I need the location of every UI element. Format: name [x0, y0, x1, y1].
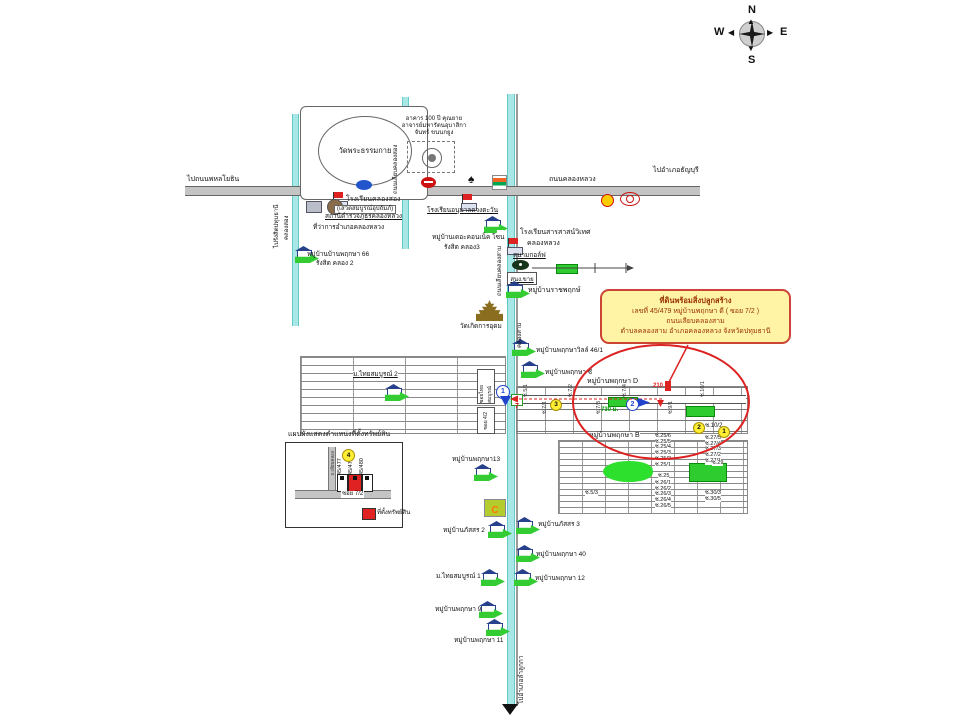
connect-label-1: หมู่บ้านเดอะคอนเน็ค โซน — [432, 234, 505, 241]
thai-somboon-label: ม.ไทยสมบูรณ์ 2 — [353, 371, 398, 378]
soi-5-3-label: ซ.5/3 — [585, 490, 598, 496]
soi-26-stack: ซ.26/1ซ.26/2ซ.26/3ซ.26/4ซ.26/5 — [655, 481, 671, 510]
property-callout: ที่ดินพร้อมสิ่งปลูกสร้าง เลขที่ 45/479 ห… — [600, 289, 791, 344]
soi-thai-somboon-box: ซอยไทยสมบูรณ์ — [477, 369, 495, 404]
kindergarten-label: โรงเรียนอนุบาลดวงตะวัน — [427, 207, 498, 214]
plot-house-subject — [348, 474, 362, 492]
plot-house-left — [337, 474, 348, 492]
connect-house-icon — [482, 216, 508, 233]
compass-arrow-left-icon: ◀ — [728, 28, 734, 37]
golf-ball — [519, 263, 522, 266]
district-office-label: ที่ว่าการอำเภอคลองหลวง — [313, 224, 384, 231]
route-point-7: 7 — [515, 403, 519, 410]
legend-vroad: ถ.เลียบคลอง — [328, 447, 336, 494]
callout-line-1: ที่ดินพร้อมสิ่งปลูกสร้าง — [608, 296, 783, 307]
compass-arrow-down-icon: ▼ — [747, 44, 755, 53]
legend-key-swatch — [362, 508, 376, 520]
flag-red — [334, 192, 343, 198]
pruksa13-label: หมู่บ้านพฤกษา13 — [452, 456, 500, 463]
wat-dhammakaya-label: วัดพระธรรมกาย — [339, 147, 392, 156]
spade-landmark-icon: ♠ — [468, 173, 474, 187]
toyota-inner — [626, 195, 634, 203]
soi-tick: ซ.5/1 — [522, 387, 530, 397]
shell-icon — [601, 194, 614, 207]
canal2-road-label: ถนนเลียบคลองสอง — [393, 136, 400, 194]
pruksa40-label: หมู่บ้านพฤกษา 40 — [536, 551, 586, 558]
lotus-icon — [356, 180, 372, 190]
soi-thai-somboon-label: ซอยไทยสมบูรณ์ — [478, 370, 494, 403]
pruksa12-label: หมู่บ้านพฤกษา 12 — [535, 575, 585, 582]
flag-red — [463, 194, 472, 200]
compass-e: E — [780, 26, 787, 39]
pruksa9-label: หมู่บ้านพฤกษา 9 — [435, 606, 481, 613]
sarasas-label-1: โรงเรียนสารสาสน์วิเทศ — [520, 229, 591, 237]
thai-somboon-house-icon — [383, 384, 409, 401]
wat-koed-temple-icon — [476, 300, 503, 321]
road-name-label: ถนนคลองหลวง — [549, 176, 596, 184]
soi-4-2-box: ซอย 4/2 — [477, 407, 495, 434]
thaisomboon1-house-icon — [479, 569, 505, 586]
pruksa13-house-icon — [472, 464, 498, 481]
route-point-1: 1 — [496, 385, 510, 399]
school-klongsong-label: โรงเรียนคลองสอง — [346, 196, 400, 204]
ratchaphruek-house-icon — [504, 281, 530, 298]
soi-25-label: ซ.25 — [658, 473, 669, 479]
route-point-7-box: 7 — [511, 394, 523, 406]
soi-29-label: ซ.29 — [712, 460, 723, 466]
compass-rose: N ▲ W ◀ ▶ E ▼ S — [712, 4, 802, 70]
store-logo-glyph: C — [491, 505, 498, 516]
callout-line-3: ถนนเลียบคลองสาม — [608, 317, 783, 327]
thaisomboon1-label: ม.ไทยสมบูรณ์ 1 — [436, 573, 481, 580]
legend-title: แผนผังแสดงตำแหน่งที่ตั้งทรัพย์สิน — [288, 431, 390, 439]
plot-marker — [353, 476, 357, 480]
route-point-3: 3 — [550, 399, 562, 411]
honda-mark — [424, 181, 433, 183]
road-east-label: ไปอำเภอธัญบุรี — [653, 167, 699, 175]
compass-n: N — [748, 4, 756, 17]
police-station-label: สถานีตำรวจภูธรคลองหลวง — [325, 213, 402, 220]
flag-red — [509, 238, 518, 244]
soi-label: ซ.30/5 — [705, 497, 721, 503]
passorn2-label: หมู่บ้านภัสสร 2 — [443, 527, 485, 534]
ratchaphruek-label: หมู่บ้านราชพฤกษ์ — [528, 287, 581, 295]
store-logo-icon: C — [484, 499, 506, 517]
legend-soi-label: ซอย 7/2 — [341, 491, 364, 498]
passorn3-house-icon — [514, 517, 540, 534]
village66-label-2: รังสิต คลอง 2 — [316, 260, 354, 267]
property-highlight-circle — [572, 344, 750, 460]
pruksaville-label: หมู่บ้านพฤกษาวิลล์ 46/1 — [536, 347, 603, 354]
soi-4-2-label: ซอย 4/2 — [482, 412, 490, 430]
callout-line-2: เลขที่ 45/479 หมู่บ้านพฤกษา ดี ( ซอย 7/2… — [608, 307, 783, 317]
connect-label-2: รังสิต คลอง3 — [444, 244, 480, 251]
canal2-direction-label: ไปรังสิตปทุมธานี — [274, 186, 281, 248]
soi-30-stack: ซ.30/3ซ.30/5 — [705, 491, 721, 502]
compass-w: W — [714, 26, 724, 39]
golf-icon — [512, 260, 529, 270]
soi-label: 45/480 — [359, 453, 365, 475]
pruksa11-label: หมู่บ้านพฤกษา 11 — [454, 637, 503, 644]
callout-line-4: ตำบลคลองสาม อำเภอคลองหลวง จังหวัดปทุมธาน… — [608, 327, 783, 337]
building-100y-dome-core — [428, 154, 436, 162]
passorn2-house-icon — [486, 521, 512, 538]
honda-icon — [421, 177, 436, 188]
canal-khlong-song — [292, 114, 299, 326]
plot-house-right — [362, 474, 373, 492]
pruksa11-house-icon — [484, 619, 510, 636]
legend-point-4: 4 — [342, 449, 355, 462]
soi-tick: ซ.7/1 — [541, 404, 549, 414]
legend-vroad-label: ถ.เลียบคลอง — [329, 451, 336, 475]
road-south-label: ไปอำเภอลำลูกกา — [518, 646, 525, 704]
compass-arrow-up-icon: ▲ — [747, 17, 755, 26]
building-100y-box — [407, 141, 455, 173]
police-building-icon — [306, 201, 322, 213]
plot-marker — [340, 476, 344, 480]
pruksa-c-house-icon — [519, 361, 545, 378]
legend-box: ถ.เลียบคลอง 4 45/47745/47945/480 ซอย 7/2… — [285, 442, 403, 528]
seven-eleven-icon — [492, 175, 507, 190]
scale-green-marker — [556, 264, 578, 274]
wat-koed-label: วัดเกิดการอุดม — [460, 323, 502, 330]
soi-label: ซ.25/1 — [655, 463, 671, 469]
map-canvas: N ▲ W ◀ ▶ E ▼ S ไปถนนพหลโยธิน ถนนคลองหลว… — [0, 0, 960, 720]
lake-green-blob — [603, 461, 653, 482]
compass-s: S — [748, 54, 755, 67]
road-west-label: ไปถนนพหลโยธิน — [187, 176, 239, 184]
scale-arrow-icon — [627, 265, 634, 271]
sarasas-label-2: คลองหลวง — [527, 240, 560, 248]
soi-label: ซ.26/5 — [655, 504, 671, 510]
village66-label-1: หมู่บ้านบ้านพฤกษา 66 — [307, 251, 369, 258]
canal3-name-label: คลองสาม — [517, 312, 524, 348]
canal2-name-label: คลองสอง — [284, 196, 291, 240]
building-100y-label: อาคาร 100 ปี คุณยายอาจารย์มหารัตนอุบาสิก… — [396, 116, 472, 138]
toyota-icon — [620, 192, 640, 206]
plot-marker — [365, 476, 369, 480]
passorn3-label: หมู่บ้านภัสสร 3 — [538, 521, 580, 528]
golf-label: สนามกอล์ฟ — [513, 252, 546, 259]
compass-arrow-right-icon: ▶ — [767, 28, 773, 37]
legend-key-label: ที่ตั้งทรัพย์สิน — [377, 510, 410, 517]
building-100y-dome-icon — [422, 148, 442, 168]
